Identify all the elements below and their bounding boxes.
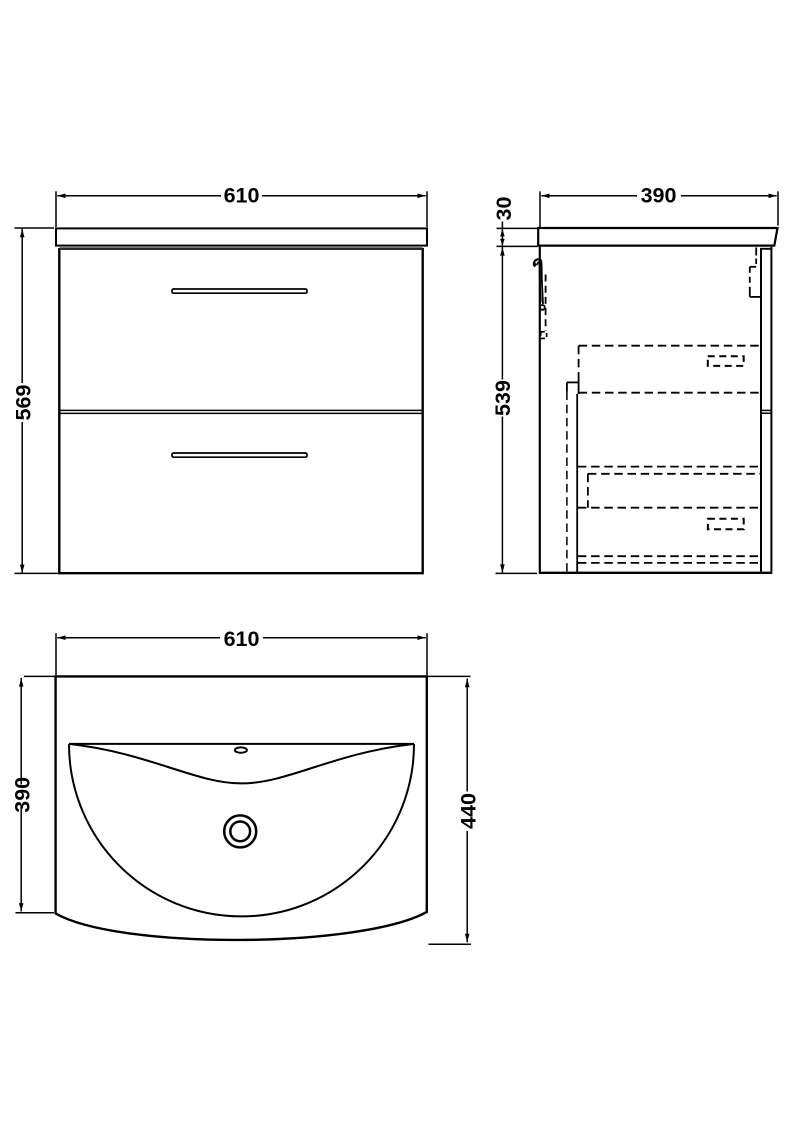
svg-text:610: 610 <box>224 184 260 208</box>
svg-text:390: 390 <box>11 777 35 813</box>
svg-text:610: 610 <box>224 627 260 651</box>
svg-text:30: 30 <box>492 197 516 221</box>
svg-text:440: 440 <box>457 793 481 829</box>
svg-text:569: 569 <box>12 385 36 421</box>
svg-text:539: 539 <box>491 380 515 416</box>
svg-text:390: 390 <box>641 184 677 208</box>
